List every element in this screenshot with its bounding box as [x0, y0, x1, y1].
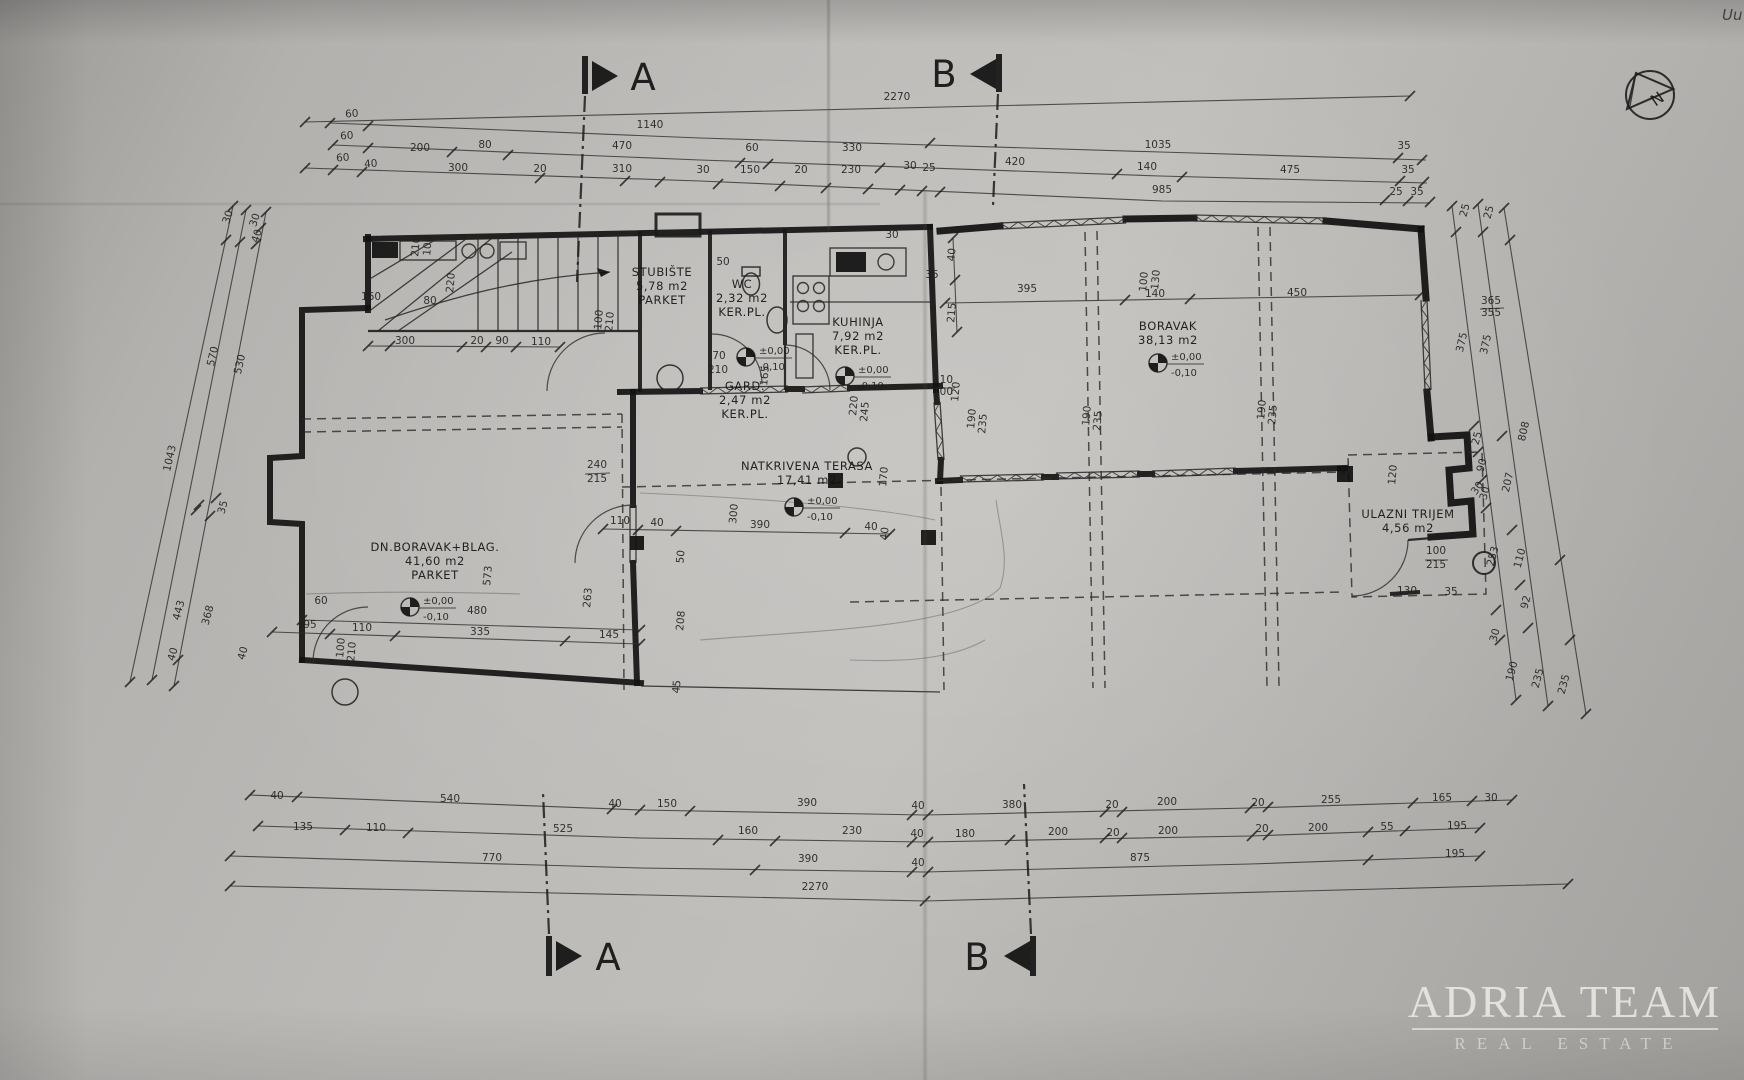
dimension-tick — [763, 159, 773, 169]
level-marker: ±0,00-0,10 — [737, 346, 792, 373]
dimension-text: 40 — [911, 857, 924, 869]
room-floor-finish: KER.PL. — [834, 343, 881, 357]
dimension-tick — [1507, 525, 1517, 535]
dimension-line — [230, 856, 1480, 872]
dimension-tick — [1425, 197, 1435, 207]
dimension-text: 1035 — [1145, 139, 1172, 151]
dimension-text: 390 — [798, 853, 818, 865]
dimension-text: 60 — [340, 130, 354, 143]
dimension-text: 395 — [1017, 283, 1037, 295]
section-marker-b-top: B — [931, 53, 999, 206]
dimension-text: 200 — [1048, 826, 1068, 838]
dimension-text: 20 — [1106, 827, 1119, 839]
dimension-text: 160 — [738, 825, 758, 837]
dimension-text: 390 — [750, 519, 770, 531]
room-label: ULAZNI TRIJEM4,56 m2 — [1361, 507, 1454, 535]
dimension-text: 190 — [1504, 660, 1521, 682]
dimension-text: 40 — [608, 798, 621, 810]
dimension-text: 35 — [1401, 164, 1414, 176]
dimension-text: 335 — [470, 626, 490, 638]
dimension-tick — [241, 205, 251, 215]
dimension-tick — [925, 138, 935, 148]
dimension-text: 35 — [1410, 186, 1423, 198]
dimension-text: 110 — [610, 515, 630, 527]
dimension-text: 210 — [345, 641, 359, 662]
room-name: ULAZNI TRIJEM — [1361, 507, 1454, 521]
dimension-text: 470 — [612, 140, 632, 152]
dimension-tick — [1515, 580, 1525, 590]
dimension-tick — [403, 828, 413, 838]
dimension-text: 40 — [878, 527, 891, 541]
section-letter: B — [964, 936, 989, 979]
dimension-text: 220 — [444, 272, 458, 293]
room-area: 2,47 m2 — [719, 393, 771, 407]
dimension-text: 100 — [421, 235, 435, 256]
dimension-text: 60 — [314, 595, 327, 607]
dimension-text: 35 — [925, 269, 938, 281]
dimension-text: 55 — [1380, 821, 1393, 833]
dimension-text: 60 — [345, 108, 359, 121]
dimension-text: 195 — [1445, 848, 1465, 860]
dimension-tick — [1499, 203, 1509, 213]
level-marker-quadrant — [1158, 354, 1167, 363]
dimension-text: 30 — [885, 229, 898, 241]
level-lower-value: -0,10 — [1171, 368, 1197, 379]
dimension-text: 165 — [1432, 792, 1452, 804]
dimension-text: 25 — [1389, 186, 1402, 198]
dimension-lines — [125, 91, 1591, 906]
watermark-brand: ADRIA TEAM — [1408, 979, 1722, 1025]
dimension-line — [330, 123, 1426, 160]
level-marker-quadrant — [845, 367, 854, 376]
dimension-text: 808 — [1516, 420, 1532, 442]
dimension-text: 135 — [293, 821, 313, 833]
level-marker: ±0,00-0,10 — [785, 496, 840, 523]
north-label: N — [1647, 88, 1668, 110]
dimension-text: 40 — [270, 790, 283, 802]
dimension-text: 20 — [533, 163, 546, 175]
dimension-text: 145 — [599, 629, 619, 641]
dimension-text: 215 — [1426, 559, 1446, 571]
dimension-line — [258, 826, 1480, 842]
dimension-line — [174, 212, 266, 686]
level-upper-value: ±0,00 — [423, 596, 454, 607]
room-name: BORAVAK — [1139, 319, 1197, 333]
dimension-text: 70 — [712, 350, 725, 362]
dimension-text: 235 — [1266, 404, 1280, 425]
dimension-text: 200 — [410, 142, 430, 154]
section-letter: A — [595, 936, 620, 979]
dimension-text: 985 — [1152, 184, 1172, 196]
dimension-text: 40 — [945, 248, 958, 262]
level-marker-quadrant — [836, 376, 845, 385]
dimension-text: 25 — [1482, 204, 1497, 220]
dimension-text: 215 — [587, 473, 607, 485]
level-marker-quadrant — [746, 348, 755, 357]
dimension-text: 60 — [336, 152, 350, 165]
room-name: NATKRIVENA TERASA — [741, 459, 873, 473]
dimension-text: 210 — [603, 311, 617, 332]
dimension-tick — [1393, 153, 1403, 163]
dimension-text: 30 — [220, 209, 236, 225]
dimension-text: 20 — [470, 335, 483, 347]
dimension-text: 300 — [448, 162, 468, 174]
dimension-text: 210 — [708, 364, 728, 376]
dimension-text: 230 — [842, 825, 862, 837]
dimension-text: 150 — [740, 164, 760, 176]
staircase — [368, 231, 618, 331]
dimension-line — [230, 884, 1568, 901]
dimension-text: 25 — [922, 162, 935, 174]
dimension-tick — [713, 835, 723, 845]
dimension-text: 310 — [612, 163, 632, 175]
dimension-text: 330 — [842, 142, 862, 154]
detail-circles — [332, 307, 1495, 705]
level-lower-value: -0,10 — [858, 381, 884, 392]
dimension-tick — [1395, 176, 1405, 186]
window-frame-line — [960, 474, 1044, 476]
dimension-text: 380 — [1002, 799, 1022, 811]
dimension-text: 235 — [976, 413, 990, 434]
window-frame-line — [1056, 471, 1140, 473]
dimension-text: 20 — [794, 164, 807, 176]
dimension-tick — [863, 184, 873, 194]
dimension-text: 215 — [945, 302, 959, 323]
window-symbols — [700, 215, 1431, 482]
dimension-text: 90 — [495, 335, 508, 347]
room-label: KUHINJA7,92 m2KER.PL. — [832, 315, 884, 357]
watermark: ADRIA TEAM REAL ESTATE — [1408, 979, 1722, 1054]
level-marker-quadrant — [1149, 363, 1158, 372]
dimension-text: 110 — [366, 822, 386, 834]
dimension-text: 120 — [1386, 464, 1400, 485]
level-upper-value: ±0,00 — [807, 496, 838, 507]
dimension-text: 875 — [1130, 852, 1150, 864]
dimension-text: 100 — [1426, 545, 1446, 557]
dimension-text: 80 — [423, 295, 436, 307]
dimension-text: 35 — [1397, 140, 1410, 152]
dimension-text: 195 — [1447, 820, 1467, 832]
dimension-text: 170 — [877, 466, 891, 487]
dimension-tick — [713, 179, 723, 189]
dimension-text: 300 — [395, 335, 415, 347]
dimension-text: 110 — [352, 622, 372, 634]
dimension-text: 200 — [1157, 796, 1177, 808]
dimension-text: 770 — [482, 852, 502, 864]
dimension-text: 230 — [841, 164, 861, 176]
dimension-text: 50 — [674, 550, 687, 564]
room-label: DN.BORAVAK+BLAG.41,60 m2PARKET — [370, 540, 499, 582]
dimension-text: 45 — [670, 680, 683, 694]
room-area: 5,78 m2 — [636, 279, 688, 293]
window-frame-line — [940, 402, 944, 460]
dimension-tick — [228, 201, 238, 211]
dimension-text: 365 — [1481, 295, 1501, 307]
dimension-text: 35 — [216, 499, 231, 515]
room-name: WC — [732, 277, 753, 291]
dimension-text: 443 — [171, 599, 188, 621]
level-upper-value: ±0,00 — [759, 346, 790, 357]
dimension-text: 25 — [1458, 202, 1473, 218]
dimension-text: 40 — [864, 521, 877, 533]
dimension-text: 40 — [236, 645, 251, 661]
dimension-text: 300 — [727, 503, 741, 524]
dimension-text: 30 — [696, 164, 709, 176]
level-upper-value: ±0,00 — [858, 365, 889, 376]
dimension-text: 80 — [478, 139, 491, 151]
level-marker-quadrant — [401, 607, 410, 616]
dimension-text: 180 — [955, 828, 975, 840]
level-lower-value: -0,10 — [423, 612, 449, 623]
dimension-text: 570 — [205, 345, 221, 367]
dimension-text: 120 — [949, 381, 963, 402]
dimension-text: 40 — [364, 158, 378, 171]
dimension-text: 540 — [440, 793, 460, 805]
dimension-tick — [1478, 227, 1488, 237]
dimension-tick — [340, 825, 350, 835]
room-floor-finish: KER.PL. — [718, 305, 765, 319]
dimension-labels: 2270114010356060200804706033042014047535… — [161, 91, 1572, 893]
dimension-text: 475 — [1280, 164, 1300, 176]
section-letter: B — [931, 53, 956, 96]
room-name: STUBIŠTE — [632, 264, 692, 279]
fraction-lines — [585, 308, 1504, 560]
dimension-text: 530 — [232, 353, 248, 375]
dimension-text: 263 — [581, 587, 595, 608]
level-marker-quadrant — [794, 498, 803, 507]
dimension-text: 573 — [481, 565, 495, 586]
level-marker-quadrant — [737, 357, 746, 366]
level-marker: ±0,00-0,10 — [401, 596, 456, 623]
dimension-text: 30 — [903, 160, 916, 172]
room-floor-finish: PARKET — [638, 293, 686, 307]
dimension-text: 50 — [716, 256, 729, 268]
dimension-tick — [1469, 421, 1479, 431]
dimension-text: 150 — [657, 798, 677, 810]
dimension-text: 355 — [1481, 307, 1501, 319]
dimension-text: 235 — [1556, 673, 1573, 695]
dimension-text: 525 — [553, 823, 573, 835]
dimension-text: 255 — [1321, 794, 1341, 806]
dimension-tick — [1481, 503, 1491, 513]
dimension-text: 240 — [587, 459, 607, 471]
dimension-text: 390 — [797, 797, 817, 809]
dimension-tick — [821, 183, 831, 193]
room-area: 7,92 m2 — [832, 329, 884, 343]
dimension-text: 253 — [1485, 545, 1502, 567]
level-marker: ±0,00-0,10 — [1149, 352, 1204, 379]
dimension-text: 90 — [1475, 457, 1490, 473]
level-lower-value: -0,10 — [759, 362, 785, 373]
dimension-tick — [620, 176, 630, 186]
dimension-text: 92 — [1519, 594, 1534, 610]
section-letter: A — [630, 56, 655, 99]
room-floor-finish: KER.PL. — [721, 407, 768, 421]
dimension-text: 35 — [1444, 586, 1457, 598]
dimension-text: 30 — [1488, 627, 1503, 643]
dimension-text: 200 — [1158, 825, 1178, 837]
dimension-tick — [169, 681, 179, 691]
dimension-tick — [1523, 623, 1533, 633]
dimension-text: 450 — [1287, 287, 1307, 299]
dimension-text: 235 — [1091, 410, 1105, 431]
room-area: 4,56 m2 — [1382, 521, 1434, 535]
dimension-text: 420 — [1005, 156, 1025, 168]
dimension-tick — [191, 505, 201, 515]
dimension-text: 245 — [858, 401, 872, 422]
dimension-text: 110 — [531, 336, 551, 348]
handwritten-mark: Uu — [1722, 6, 1743, 24]
room-name: DN.BORAVAK+BLAG. — [370, 540, 499, 554]
window-zigzag — [1000, 217, 1126, 229]
dimension-text: 368 — [200, 604, 217, 626]
dimension-text: 110 — [1512, 547, 1529, 569]
room-area: 2,32 m2 — [716, 291, 768, 305]
dimension-tick — [125, 677, 135, 687]
dimension-text: 200 — [1308, 822, 1328, 834]
dimension-text: 40 — [910, 828, 923, 840]
room-label: BORAVAK38,13 m2 — [1138, 319, 1198, 347]
dimension-line — [305, 96, 1410, 122]
dimension-text: 130 — [1397, 585, 1417, 597]
window-frame-line — [1056, 477, 1140, 479]
room-label: GARD.2,47 m2KER.PL. — [719, 379, 771, 421]
dimension-text: 207 — [1500, 471, 1516, 493]
level-upper-value: ±0,00 — [1171, 352, 1202, 363]
dimension-tick — [363, 121, 373, 131]
dimension-tick — [1497, 431, 1507, 441]
level-marker-quadrant — [410, 598, 419, 607]
dimension-tick — [671, 526, 681, 536]
dimension-text: 208 — [674, 610, 688, 631]
section-marker-a-bottom: A — [543, 792, 621, 979]
dimension-text: 30 — [1484, 792, 1497, 804]
dimension-text: 140 — [1145, 288, 1165, 300]
watermark-rule — [1412, 1028, 1718, 1030]
room-area: 17,41 m2 — [777, 473, 837, 487]
room-floor-finish: PARKET — [411, 568, 459, 582]
dimension-tick — [770, 836, 780, 846]
dimension-text: 40 — [650, 517, 663, 529]
room-name: KUHINJA — [832, 315, 884, 329]
room-labels: STUBIŠTE5,78 m2PARKETWC2,32 m2KER.PL.GAR… — [370, 264, 1454, 582]
room-area: 41,60 m2 — [405, 554, 465, 568]
dimension-tick — [194, 500, 204, 510]
north-compass-icon: N — [1626, 71, 1674, 119]
dimension-tick — [1581, 709, 1591, 719]
dimension-tick — [875, 163, 885, 173]
room-area: 38,13 m2 — [1138, 333, 1198, 347]
floor-plan-drawing: A B A B N Uu 2 — [0, 0, 1744, 1080]
dimension-text: 375 — [1478, 333, 1494, 355]
dimension-line — [945, 295, 1420, 303]
dimension-line — [305, 168, 1430, 203]
kitchen-fixtures — [372, 241, 930, 378]
dimension-text: 20 — [1105, 799, 1118, 811]
dimension-text: 235 — [1530, 667, 1547, 689]
level-marker-quadrant — [785, 507, 794, 516]
level-lower-value: -0,10 — [807, 512, 833, 523]
dimension-line — [1504, 208, 1586, 714]
room-name: GARD. — [725, 379, 765, 393]
dimension-tick — [363, 143, 373, 153]
dimension-tick — [1491, 605, 1501, 615]
room-label: STUBIŠTE5,78 m2PARKET — [632, 264, 692, 307]
dimension-tick — [447, 147, 457, 157]
dimension-text: 95 — [303, 619, 316, 631]
dimension-text: 1140 — [637, 119, 664, 131]
dimension-line — [1478, 204, 1548, 706]
dimension-tick — [655, 177, 665, 187]
dimension-text: 480 — [467, 605, 487, 617]
dimension-text: 20 — [1251, 797, 1264, 809]
dimension-text: 140 — [1137, 161, 1157, 173]
dimension-tick — [147, 675, 157, 685]
dimension-text: 160 — [361, 291, 381, 303]
dimension-tick — [775, 181, 785, 191]
dimension-text: 30 — [247, 212, 263, 228]
dimension-text: 375 — [1454, 331, 1470, 353]
watermark-tagline: REAL ESTATE — [1408, 1034, 1722, 1054]
dimension-text: 2270 — [884, 91, 911, 103]
floor-plan-photo: A B A B N Uu 2 — [0, 0, 1744, 1080]
dimension-line — [333, 145, 1427, 183]
dimension-tick — [328, 165, 338, 175]
dimension-text: 20 — [1255, 823, 1268, 835]
dimension-text: 60 — [745, 142, 758, 154]
dimension-text: 40 — [911, 800, 924, 812]
dimension-text: 2270 — [802, 881, 829, 893]
